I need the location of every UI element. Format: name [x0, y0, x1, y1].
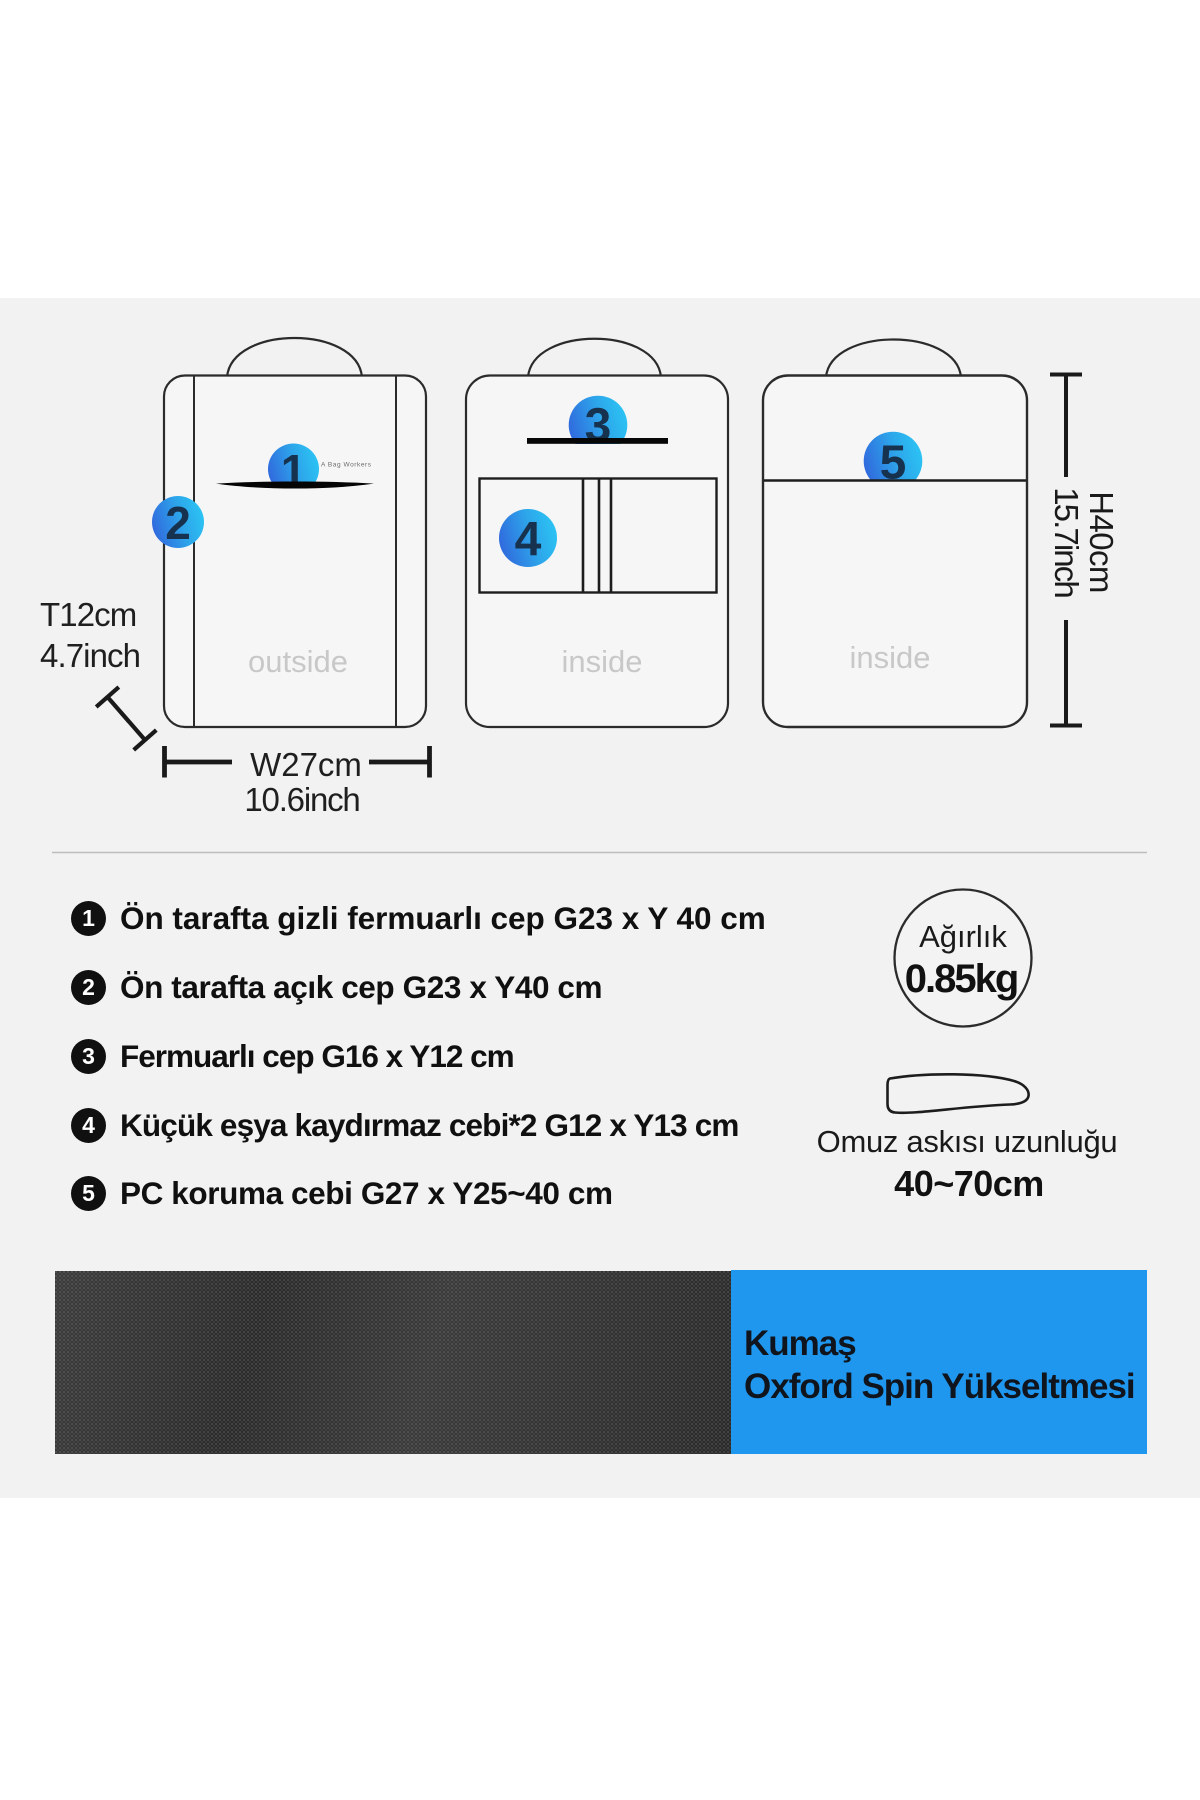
svg-text:4: 4: [515, 514, 542, 567]
svg-text:4.7inch: 4.7inch: [40, 637, 140, 674]
svg-text:2: 2: [165, 497, 191, 549]
svg-text:10.6inch: 10.6inch: [244, 781, 359, 818]
svg-text:0.85kg: 0.85kg: [905, 957, 1018, 1001]
svg-text:15.7inch: 15.7inch: [1048, 487, 1085, 597]
svg-text:H40cm: H40cm: [1083, 491, 1120, 593]
svg-text:inside: inside: [850, 640, 931, 675]
svg-text:T12cm: T12cm: [40, 596, 136, 633]
svg-text:Ağırlık: Ağırlık: [919, 919, 1007, 954]
svg-text:40~70cm: 40~70cm: [894, 1163, 1044, 1204]
svg-text:A Bag Workers: A Bag Workers: [321, 462, 372, 469]
svg-text:inside: inside: [562, 644, 643, 679]
svg-text:W27cm: W27cm: [250, 746, 362, 783]
svg-text:outside: outside: [248, 644, 348, 679]
svg-text:Omuz askısı uzunluğu: Omuz askısı uzunluğu: [817, 1124, 1118, 1159]
